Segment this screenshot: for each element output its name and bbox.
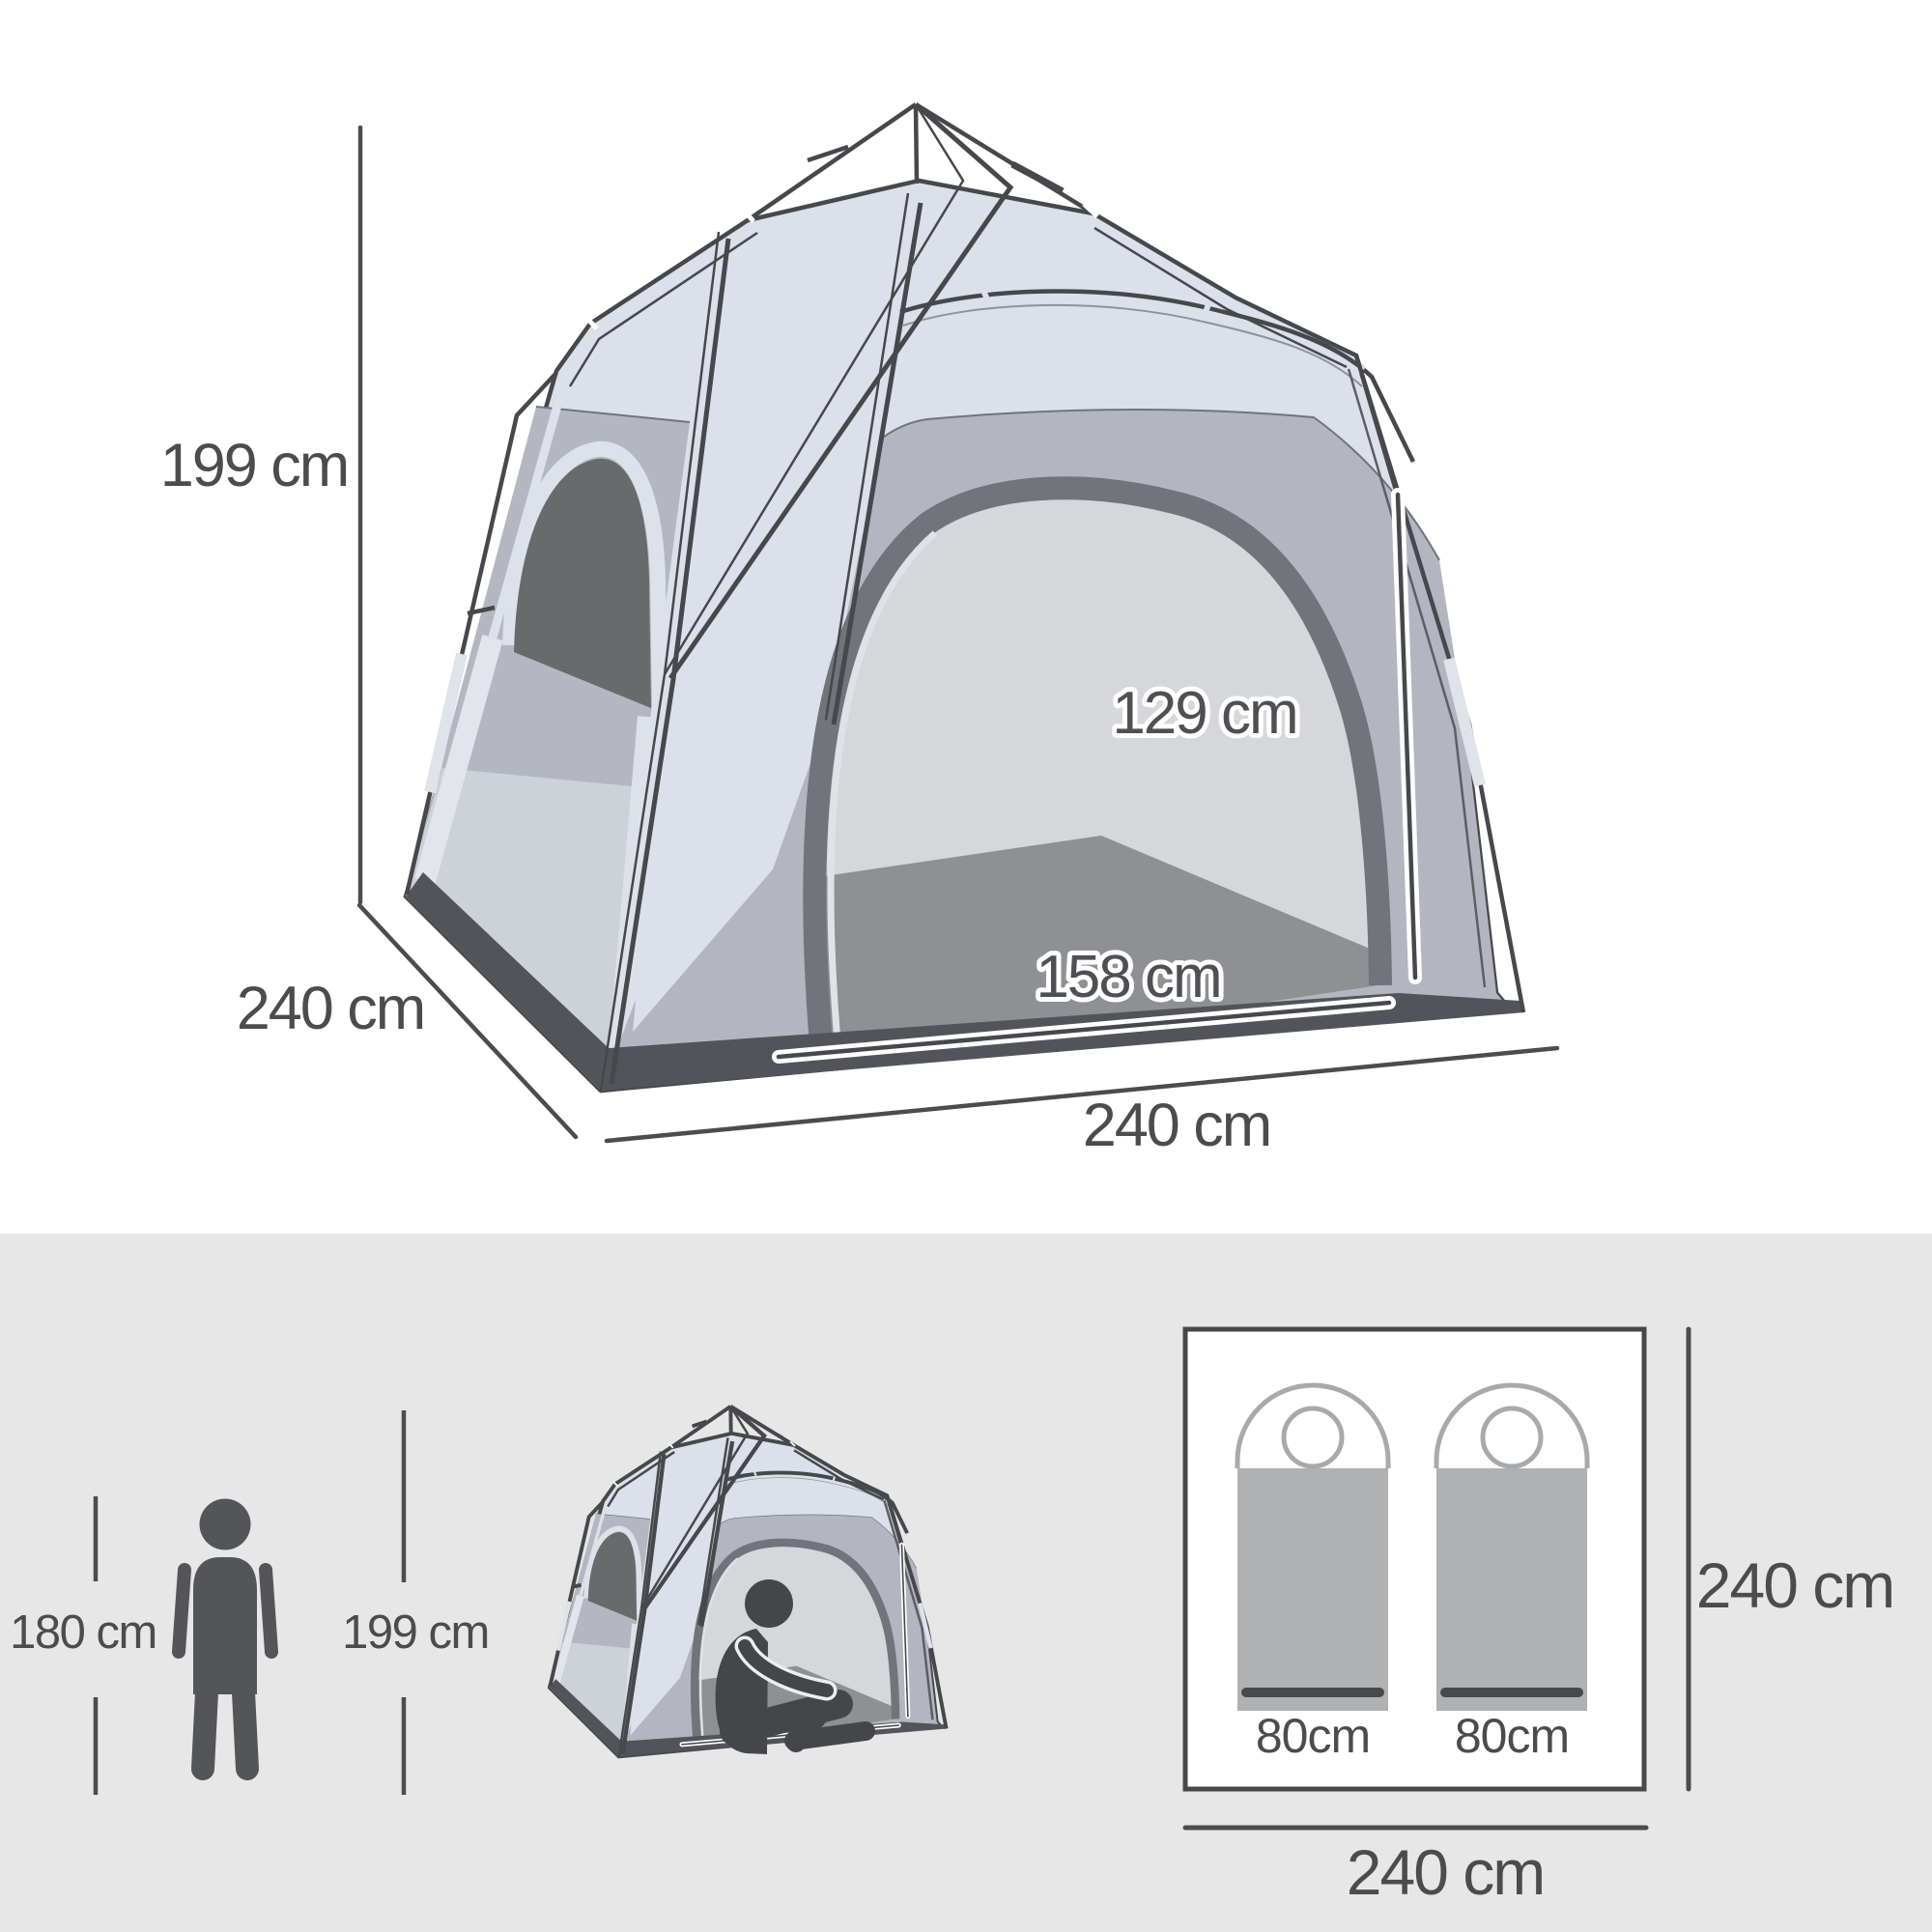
svg-text:240 cm: 240 cm <box>1696 1549 1893 1621</box>
svg-text:240 cm: 240 cm <box>1083 1092 1271 1159</box>
svg-text:80cm: 80cm <box>1256 1709 1370 1763</box>
svg-text:240 cm: 240 cm <box>237 975 425 1042</box>
svg-text:199 cm: 199 cm <box>160 432 349 499</box>
svg-text:199 cm: 199 cm <box>342 1606 489 1659</box>
svg-text:240 cm: 240 cm <box>1347 1836 1544 1908</box>
svg-text:80cm: 80cm <box>1455 1709 1569 1763</box>
svg-text:129 cm: 129 cm <box>1112 680 1296 747</box>
svg-text:180 cm: 180 cm <box>10 1606 156 1659</box>
svg-text:158 cm: 158 cm <box>1036 944 1220 1010</box>
